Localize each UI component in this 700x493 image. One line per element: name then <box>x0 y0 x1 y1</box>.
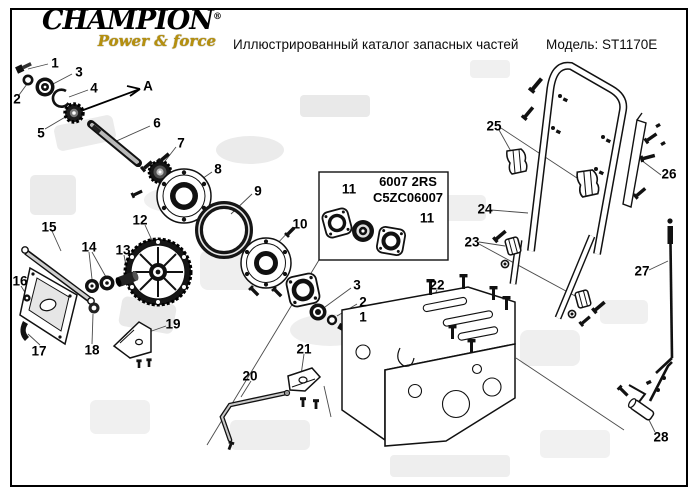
bearing-spec-text: 6007 2RS C5ZC06007 <box>362 174 454 205</box>
brand-logo: CHAMPION® Power & force <box>42 7 220 50</box>
catalog-page: CHAMPION® Power & force Иллюстрированный… <box>0 0 700 493</box>
bearing-spec-line2: C5ZC06007 <box>362 190 454 206</box>
model-label: Модель: ST1170E <box>546 37 657 52</box>
page-title: Иллюстрированный каталог запасных частей <box>233 37 518 52</box>
brand-name: CHAMPION® <box>42 7 220 35</box>
registered-mark: ® <box>213 12 222 22</box>
page-border <box>10 8 688 487</box>
bearing-spec-line1: 6007 2RS <box>362 174 454 190</box>
